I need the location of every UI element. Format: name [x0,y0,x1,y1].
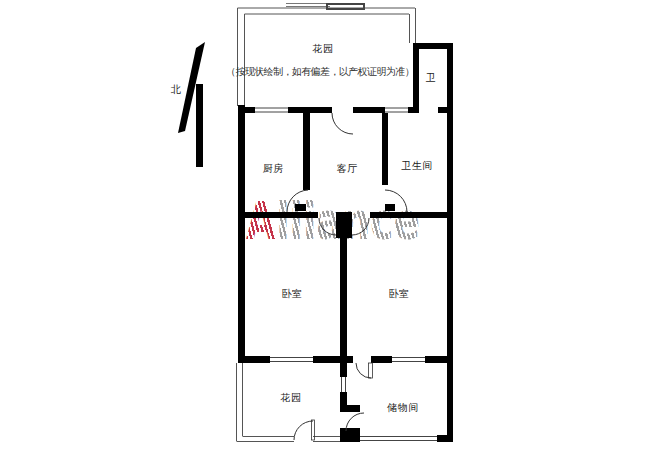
floor-plan-canvas: Alliance 北 [0,0,650,450]
disclaimer-note: （按现状绘制，如有偏差，以产权证明为准） [226,66,414,77]
north-arrow [178,42,205,167]
room-label-bathroom: 卫生间 [401,160,433,171]
room-label-garden-top: 花园 [312,43,334,54]
room-label-bedroom-left: 卧室 [282,288,303,299]
room-label-garden-bottom: 花园 [280,392,302,403]
room-label-bedroom-right: 卧室 [389,288,410,299]
north-label: 北 [171,84,182,95]
room-label-living-room: 客厅 [337,163,358,174]
room-label-storage: 储物间 [386,402,419,413]
room-label-kitchen: 厨房 [263,163,284,174]
room-label-toilet: 卫 [426,72,437,83]
floor-plan-drawing: 北 [0,0,650,450]
